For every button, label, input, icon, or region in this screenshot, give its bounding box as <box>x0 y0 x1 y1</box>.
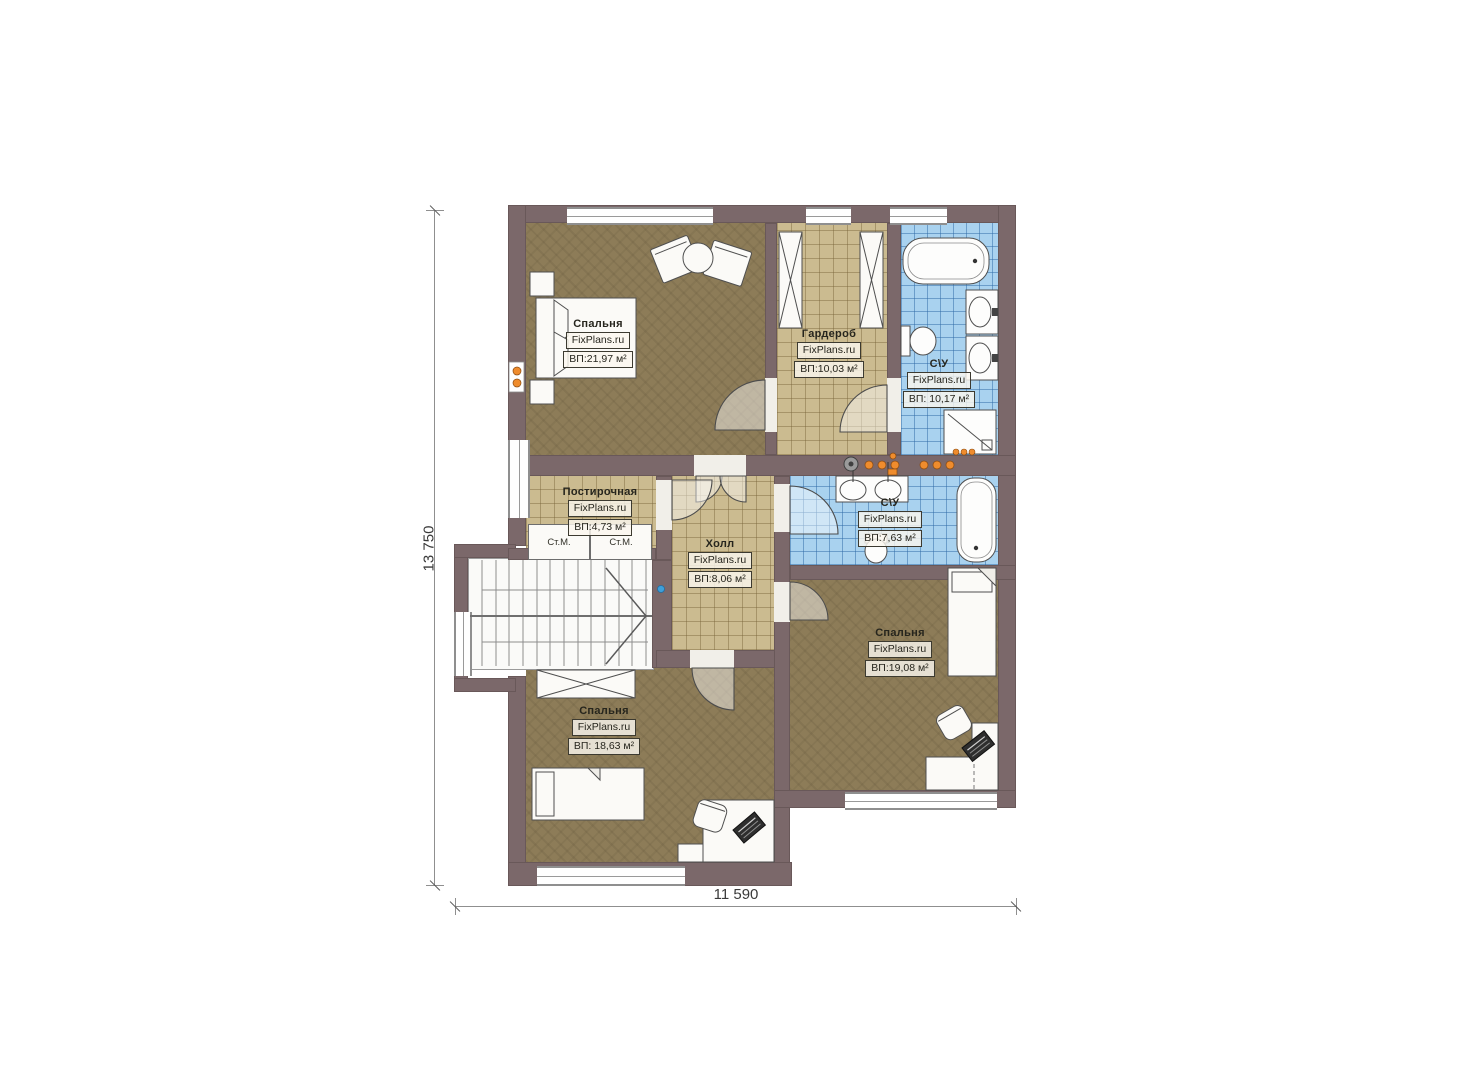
room-area: ВП:7,63 м² <box>858 530 922 547</box>
washer-label: Ст.М. <box>547 537 570 548</box>
room-label-laundry: Постирочная FixPlans.ru ВП:4,73 м² <box>542 486 658 536</box>
wall-vertical-right <box>774 476 790 886</box>
dimension-height: 13 750 <box>421 514 438 584</box>
floor-bath-top <box>901 223 998 455</box>
dimension-line-bottom <box>455 906 1016 907</box>
room-area: ВП:21,97 м² <box>563 351 632 368</box>
window-top-bath <box>890 207 947 225</box>
room-area: ВП:4,73 м² <box>568 519 632 536</box>
room-label-bath-top: С\У FixPlans.ru ВП: 10,17 м² <box>898 358 980 408</box>
room-name: Холл <box>706 538 735 550</box>
room-name: С\У <box>881 497 900 509</box>
opening-bedroom-bottom-door <box>690 650 734 668</box>
room-label-bath-mid: С\У FixPlans.ru ВП:7,63 м² <box>846 497 934 547</box>
wall-bath-bedroom <box>790 565 1016 580</box>
wall-bumpout-bottom <box>454 678 516 692</box>
opening-bedroom-right-door <box>774 582 790 622</box>
room-name: Спальня <box>579 705 629 717</box>
room-brand: FixPlans.ru <box>797 342 862 359</box>
window-top-bedroom <box>567 207 713 225</box>
wall-left-lower <box>508 676 526 886</box>
floor-bedroom-right <box>790 580 998 790</box>
opening-bath-mid-door <box>774 484 790 532</box>
room-brand: FixPlans.ru <box>868 641 933 658</box>
wall-bumpout-top <box>454 544 516 558</box>
wall-middle <box>508 455 1016 476</box>
room-name: Спальня <box>875 627 925 639</box>
window-top-wardrobe <box>806 207 851 225</box>
room-brand: FixPlans.ru <box>566 332 631 349</box>
floor-plan-page: Ст.М. Ст.М. <box>0 0 1474 1080</box>
window-bedroom-bottom <box>537 866 685 886</box>
room-name: Спальня <box>573 318 623 330</box>
room-name: Гардероб <box>802 328 856 340</box>
staircase-area <box>468 558 654 670</box>
room-name: Постирочная <box>563 486 638 498</box>
room-label-bedroom-top: Спальня FixPlans.ru ВП:21,97 м² <box>540 318 656 368</box>
floor-bedroom-bottom <box>526 668 774 862</box>
room-area: ВП: 10,17 м² <box>903 391 975 408</box>
window-bedroom-right <box>845 792 997 810</box>
room-area: ВП:19,08 м² <box>865 660 934 677</box>
dimension-width: 11 590 <box>691 886 781 903</box>
room-area: ВП:10,03 м² <box>794 361 863 378</box>
room-area: ВП:8,06 м² <box>688 571 752 588</box>
room-brand: FixPlans.ru <box>907 372 972 389</box>
wall-right <box>998 205 1016 808</box>
room-brand: FixPlans.ru <box>572 719 637 736</box>
room-label-wardrobe: Гардероб FixPlans.ru ВП:10,03 м² <box>788 328 870 378</box>
room-area: ВП: 18,63 м² <box>568 738 640 755</box>
room-brand: FixPlans.ru <box>568 500 633 517</box>
opening-hall-top <box>694 455 746 476</box>
room-name: С\У <box>930 358 949 370</box>
opening-bedroom-door <box>765 378 777 432</box>
room-label-bedroom-bottom: Спальня FixPlans.ru ВП: 18,63 м² <box>554 705 654 755</box>
window-bumpout <box>454 612 472 676</box>
opening-laundry-door <box>656 480 672 530</box>
room-brand: FixPlans.ru <box>858 511 923 528</box>
washer-label: Ст.М. <box>609 537 632 548</box>
window-left-wall <box>508 440 530 518</box>
room-label-hall: Холл FixPlans.ru ВП:8,06 м² <box>676 538 764 588</box>
room-brand: FixPlans.ru <box>688 552 753 569</box>
room-label-bedroom-right: Спальня FixPlans.ru ВП:19,08 м² <box>854 627 946 677</box>
